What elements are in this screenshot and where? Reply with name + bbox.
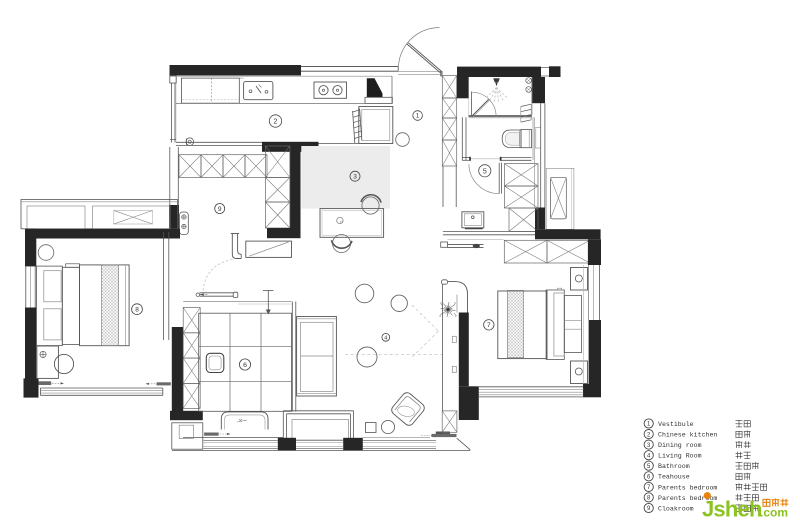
svg-text:7: 7 [487,322,491,329]
svg-text:Parents bedroom: Parents bedroom [658,484,717,491]
svg-text:Bathroom: Bathroom [658,463,690,470]
svg-text:8: 8 [135,307,139,314]
svg-text:Vestibule: Vestibule [658,421,694,428]
svg-text:Dining room: Dining room [658,442,702,449]
svg-text:.com: .com [760,506,788,520]
svg-text:9: 9 [218,206,222,213]
svg-text:3: 3 [353,174,357,181]
svg-text:5: 5 [483,168,487,175]
svg-text:Living Room: Living Room [658,453,702,460]
svg-text:Chinese kitchen: Chinese kitchen [658,432,717,439]
svg-text:6: 6 [243,362,247,369]
svg-text:Cloakroom: Cloakroom [658,505,694,512]
svg-text:2: 2 [274,119,278,126]
svg-text:Teahouse: Teahouse [658,474,690,481]
svg-text:4: 4 [384,335,387,341]
svg-text:Jsheh: Jsheh [702,497,762,522]
